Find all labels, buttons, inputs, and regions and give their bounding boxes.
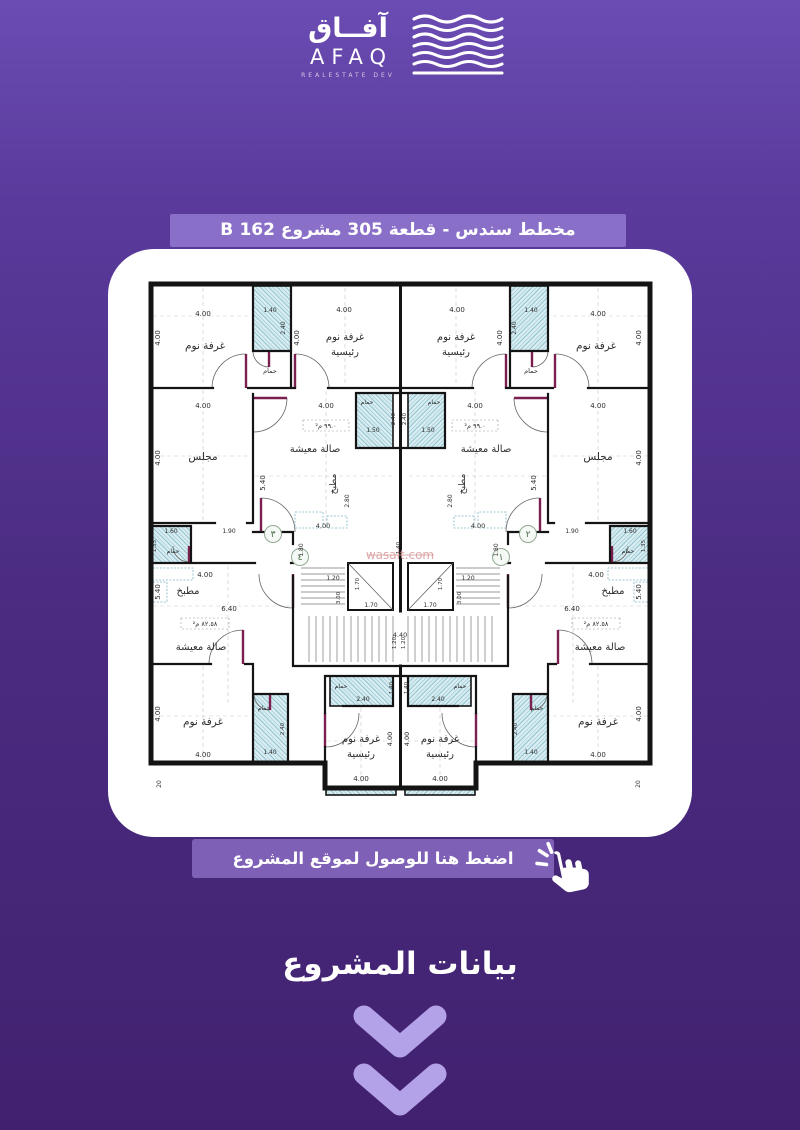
plan-label: 3.00	[336, 591, 342, 604]
chevron-down-icon[interactable]	[350, 1004, 450, 1062]
plan-label: 1.70	[438, 577, 444, 590]
plan-label: 5.40	[154, 584, 162, 600]
plan-label: 4.00	[293, 330, 301, 346]
plan-label: رئيسية	[442, 347, 470, 358]
plan-label: 4.00	[195, 402, 211, 410]
plan-label: غرفة نوم	[578, 716, 619, 728]
plan-label: غرفة نوم	[183, 716, 224, 728]
plan-label: غرفة نوم	[421, 734, 459, 745]
plan-label: 5.40	[530, 475, 538, 491]
plan-label: 4.00	[635, 706, 643, 722]
click-hand-icon[interactable]	[526, 832, 602, 908]
plan-label: حمام	[524, 367, 538, 375]
plan-label: 1.80	[493, 543, 500, 557]
project-data-title: بيانات المشروع	[0, 946, 800, 982]
plan-label: 20	[635, 780, 642, 788]
plan-label: 4.00	[336, 306, 352, 314]
logo: آفــاق AFAQ REALESTATE DEV	[296, 14, 504, 79]
plan-label: 4.00	[588, 571, 604, 579]
plan-label: 1.40	[263, 749, 277, 756]
unit-number: ٢	[526, 530, 531, 540]
plan-label: 4.00	[635, 330, 643, 346]
plan-label: 2.40	[511, 321, 518, 335]
plan-label: ٨٢.٥٨ م²	[193, 620, 218, 628]
plan-label: مجلس	[188, 451, 217, 463]
plan-label: رئيسية	[426, 749, 454, 760]
plan-label: ٩٩.٠ م²	[315, 422, 336, 430]
plan-label: 1.70	[423, 602, 437, 609]
plan-label: 4.00	[449, 306, 465, 314]
plan-label: مطبخ	[329, 473, 339, 494]
plan-label: 2.80	[344, 494, 351, 508]
plan-label: صالة معيشة	[575, 642, 626, 653]
plan-label: 4.00	[590, 310, 606, 318]
plan-label: 4.40	[393, 631, 407, 639]
plan-label: حمام	[263, 367, 277, 375]
plan-label: 4.00	[195, 310, 211, 318]
plan-label: 2.40	[280, 722, 286, 735]
plan-label: 2.40	[391, 412, 397, 425]
plan-label: حمام	[335, 683, 348, 690]
plan-label: صالة معيشة	[290, 444, 341, 455]
plan-label: 4.00	[154, 706, 162, 722]
plan-label: 2.40	[356, 696, 370, 703]
plan-label: 4.00	[197, 571, 213, 579]
plan-label: غرفة نوم	[342, 734, 380, 745]
plan-label: حمام	[258, 705, 271, 712]
plan-label: غرفة نوم	[576, 340, 617, 352]
logo-text-block: آفــاق AFAQ REALESTATE DEV	[296, 14, 400, 79]
plan-label: 5.40	[259, 475, 267, 491]
plan-label: حمام	[428, 399, 441, 406]
plan-label: 1.60	[623, 528, 637, 535]
plan-label: مجلس	[583, 451, 612, 463]
plan-label: 20	[156, 780, 163, 788]
plan-label: 5.40	[635, 584, 643, 600]
plan-label: 6.40	[221, 605, 237, 613]
plan-label: 1.90	[222, 528, 236, 535]
plan-label: 4.00	[386, 732, 394, 746]
plan-label: مطبخ	[176, 586, 199, 597]
plan-label: 1.50	[366, 427, 380, 434]
chevron-down-icon[interactable]	[350, 1062, 450, 1120]
plan-label: 4.00	[195, 751, 211, 759]
plan-label: مطبخ	[458, 473, 468, 494]
plan-label: 1.40	[263, 307, 277, 314]
real-estate-flyer: { "colors":{ "bg_top":"#6a4cb3","bg_bott…	[0, 0, 800, 1130]
plan-label: 4.00	[432, 775, 448, 783]
plan-label: 3.00	[457, 591, 463, 604]
plan-label: 2.80	[447, 494, 454, 508]
plan-label: 1.80	[298, 543, 305, 557]
plan-label: 1.50	[421, 427, 435, 434]
plan-label: 4.00	[318, 402, 334, 410]
plan-label: 4.00	[590, 751, 606, 759]
plan-label: 4.00	[403, 732, 411, 746]
plan-label: 4.00	[316, 522, 330, 530]
plan-label: غرفة نوم	[185, 340, 226, 352]
plan-label: 1.35	[152, 539, 158, 552]
plan-label: غرفة نوم	[326, 332, 364, 343]
unit-number: ٣	[271, 530, 276, 540]
logo-arabic-text: آفــاق	[296, 14, 400, 44]
logo-latin-text: AFAQ	[296, 45, 400, 69]
plan-label: 4.00	[154, 450, 162, 466]
plan-label: غرفة نوم	[437, 332, 475, 343]
plan-label: 2.40	[513, 722, 519, 735]
plan-label: حمام	[454, 683, 467, 690]
plan-label: 1.40	[404, 681, 410, 694]
location-cta-button[interactable]: اضغط هنا للوصول لموقع المشروع	[192, 839, 554, 878]
plan-label: 4.00	[496, 330, 504, 346]
plan-label: صالة معيشة	[176, 642, 227, 653]
waves-icon	[412, 14, 504, 78]
plan-label: رئيسية	[331, 347, 359, 358]
plan-label: 1.35	[641, 539, 647, 552]
plan-label: 6.40	[564, 605, 580, 613]
plan-label: 2.40	[280, 321, 287, 335]
plan-label: صالة معيشة	[461, 444, 512, 455]
plan-label: 2.40	[431, 696, 445, 703]
plan-label: 2.40	[402, 412, 408, 425]
plan-label: 1.20	[326, 575, 340, 582]
plan-label: 1.40	[389, 681, 395, 694]
project-title-banner: مخطط سندس - قطعة 305 مشروع 162 B	[170, 214, 626, 247]
logo-subtitle: REALESTATE DEV	[296, 72, 400, 79]
plan-label: 4.00	[590, 402, 606, 410]
bathroom-hatch	[253, 286, 291, 351]
plan-label: رئيسية	[347, 749, 375, 760]
plan-label: 1.90	[565, 528, 579, 535]
plan-label: 4.00	[635, 450, 643, 466]
plan-label: 4.00	[154, 330, 162, 346]
plan-label: حمام	[167, 548, 180, 555]
plan-label: 1.40	[524, 307, 538, 314]
plan-label: 4.00	[353, 775, 369, 783]
plan-label: مطبخ	[601, 586, 624, 597]
plan-label: ٩٩.٠ م²	[464, 422, 485, 430]
plan-label: 1.70	[364, 602, 378, 609]
plan-label: حمام	[361, 399, 374, 406]
plan-label: ٨٢.٥٨ م²	[584, 620, 609, 628]
plan-label: 1.40	[396, 541, 402, 554]
plan-label: حمام	[531, 705, 544, 712]
plan-label: 1.20	[461, 575, 475, 582]
plan-label: 1.40	[524, 749, 538, 756]
floor-plan: wasalt.com ٣٤٢١ 4.004.004.004.00غرفة نوم…	[143, 276, 658, 801]
floorplan-card: wasalt.com ٣٤٢١ 4.004.004.004.00غرفة نوم…	[108, 249, 692, 837]
plan-label: 1.70	[355, 577, 361, 590]
plan-label: 4.00	[471, 522, 485, 530]
plan-label: 4.00	[467, 402, 483, 410]
plan-label: حمام	[622, 548, 635, 555]
plan-label: 1.60	[164, 528, 178, 535]
